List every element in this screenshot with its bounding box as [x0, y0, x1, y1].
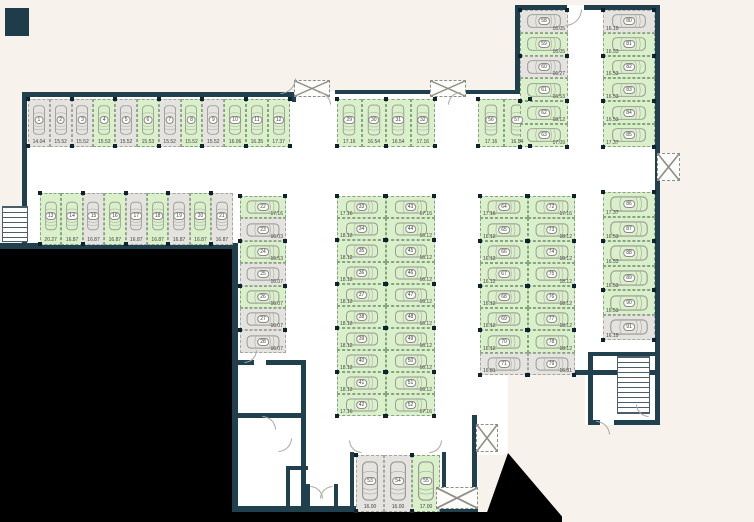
space-size-label: 16.03: [270, 234, 283, 240]
parking-space-53[interactable]: 5316.00: [356, 455, 384, 512]
column-post: [652, 145, 656, 149]
parking-space-43[interactable]: 4317.16: [386, 196, 435, 218]
space-number: 44: [405, 225, 417, 233]
space-number: 39: [356, 335, 368, 343]
parking-space-59[interactable]: 5916.05: [520, 33, 568, 56]
space-size-label: 16.19: [606, 26, 619, 32]
column-post: [478, 373, 482, 377]
space-number: 22: [257, 203, 269, 211]
parking-space-25[interactable]: 2516.07: [240, 263, 286, 285]
space-size-label: 16.12: [483, 256, 496, 262]
space-number: 75: [546, 270, 558, 278]
column-post: [244, 97, 248, 101]
space-number: 25: [257, 270, 269, 278]
parking-space-48[interactable]: 4816.12: [386, 306, 435, 328]
parking-space-85[interactable]: 8517.37: [603, 124, 655, 147]
parking-space-50[interactable]: 5016.12: [386, 350, 435, 372]
space-size-label: 15.52: [163, 139, 176, 145]
parking-space-29[interactable]: 2917.16: [337, 99, 362, 147]
column-post: [572, 373, 576, 377]
column-post: [38, 242, 42, 246]
column-post: [384, 97, 388, 101]
space-number: 26: [257, 293, 269, 301]
space-size-label: 16.12: [419, 321, 432, 327]
column-post: [238, 194, 242, 198]
space-size-label: 15.53: [98, 139, 111, 145]
space-number: 79: [546, 360, 558, 368]
parking-space-19[interactable]: 1916.87: [168, 193, 189, 245]
space-size-label: 16.12: [419, 277, 432, 283]
column-post: [209, 242, 213, 246]
column-post: [354, 453, 358, 457]
space-number: 56: [485, 116, 497, 124]
column-post: [335, 326, 339, 330]
space-number: 6: [144, 116, 153, 124]
space-size-label: 17.37: [272, 139, 285, 145]
column-post: [526, 284, 530, 288]
space-number: 5: [122, 116, 131, 124]
column-post: [166, 191, 170, 195]
parking-space-84[interactable]: 8416.53: [603, 101, 655, 124]
space-number: 24: [257, 248, 269, 256]
column-post: [335, 238, 339, 242]
column-post: [601, 338, 605, 342]
parking-space-68[interactable]: 6816.12: [480, 286, 528, 308]
space-number: 12: [273, 116, 285, 124]
space-number: 61: [538, 86, 550, 94]
column-post: [283, 194, 287, 198]
space-number: 53: [364, 477, 376, 485]
space-number: 16: [109, 212, 121, 220]
space-size-label: 18.12: [552, 117, 565, 123]
space-size-label: 18.12: [559, 301, 572, 307]
space-number: 76: [546, 293, 558, 301]
space-number: 81: [623, 40, 635, 48]
space-size-label: 16.87: [216, 237, 229, 243]
space-number: 58: [538, 17, 550, 25]
parking-space-46[interactable]: 4616.12: [386, 262, 435, 284]
space-number: 38: [356, 313, 368, 321]
space-number: 29: [343, 116, 355, 124]
space-size-label: 15.52: [76, 139, 89, 145]
column-post: [601, 99, 605, 103]
parking-space-41[interactable]: 4118.12: [337, 372, 386, 394]
parking-space-14[interactable]: 1416.87: [61, 193, 82, 245]
parking-space-78[interactable]: 7818.12: [528, 330, 575, 352]
wall: [350, 452, 354, 508]
parking-space-73[interactable]: 7318.12: [528, 218, 575, 240]
space-size-label: 18.12: [559, 323, 572, 329]
space-number: 7: [165, 116, 174, 124]
column-post: [432, 238, 436, 242]
column-post: [476, 144, 480, 148]
parking-space-23[interactable]: 2316.03: [240, 218, 286, 240]
column-post: [572, 194, 576, 198]
column-post: [518, 99, 522, 103]
wall: [588, 352, 593, 424]
parking-space-24[interactable]: 2416.53: [240, 241, 286, 263]
parking-space-89[interactable]: 8916.53: [603, 266, 655, 291]
parking-space-58[interactable]: 5816.05: [520, 10, 568, 33]
space-size-label: 17.16: [419, 211, 432, 217]
parking-space-31[interactable]: 3116.54: [386, 99, 411, 147]
column-post: [565, 54, 569, 58]
parking-space-45[interactable]: 4516.12: [386, 240, 435, 262]
column-post: [384, 144, 388, 148]
column-post: [432, 370, 436, 374]
wall: [266, 360, 306, 365]
parking-space-5[interactable]: 515.52: [115, 99, 137, 147]
space-number: 23: [257, 226, 269, 234]
column-post: [335, 370, 339, 374]
space-size-label: 16.00: [364, 504, 377, 510]
column-post: [124, 191, 128, 195]
space-size-label: 16.81: [483, 368, 496, 374]
space-number: 35: [356, 247, 368, 255]
space-size-label: 17.37: [606, 210, 619, 216]
space-size-label: 17.16: [483, 211, 496, 217]
wall: [286, 466, 308, 470]
space-size-label: 18.12: [559, 346, 572, 352]
space-size-label: 16.54: [367, 139, 380, 145]
parking-space-8[interactable]: 815.52: [181, 99, 203, 147]
parking-space-54[interactable]: 5416.00: [384, 455, 412, 512]
parking-space-76[interactable]: 7618.12: [528, 286, 575, 308]
space-size-label: 16.06: [229, 139, 242, 145]
parking-space-10[interactable]: 1016.06: [224, 99, 246, 147]
space-number: 4: [100, 116, 109, 124]
space-size-label: 16.53: [270, 256, 283, 262]
parking-floor-plan: 114.04215.52315.52415.53515.52615.53715.…: [0, 0, 754, 522]
masked-region: [0, 249, 232, 522]
parking-space-12[interactable]: 1217.37: [268, 99, 290, 147]
parking-space-86[interactable]: 8617.37: [603, 192, 655, 217]
parking-space-38[interactable]: 3818.12: [337, 306, 386, 328]
parking-space-3[interactable]: 315.52: [72, 99, 94, 147]
column-post: [335, 414, 339, 418]
column-post: [288, 97, 292, 101]
space-number: 86: [623, 200, 635, 208]
column-post: [601, 8, 605, 12]
column-post: [384, 326, 388, 330]
parking-space-62[interactable]: 6218.12: [520, 101, 568, 124]
space-number: 74: [546, 248, 558, 256]
space-size-label: 18.12: [340, 365, 353, 371]
space-size-label: 16.53: [606, 94, 619, 100]
space-size-label: 16.35: [251, 139, 264, 145]
space-number: 45: [405, 247, 417, 255]
space-number: 1: [35, 116, 44, 124]
column-post: [478, 328, 482, 332]
space-number: 48: [405, 313, 417, 321]
column-post: [652, 8, 656, 12]
column-post: [113, 97, 117, 101]
space-number: 80: [623, 17, 635, 25]
space-size-label: 18.12: [340, 233, 353, 239]
parking-space-71[interactable]: 7116.81: [480, 353, 528, 375]
space-size-label: 16.12: [419, 233, 432, 239]
space-size-label: 17.16: [340, 409, 353, 415]
column-post: [81, 242, 85, 246]
space-size-label: 16.87: [66, 237, 79, 243]
crossed-shaft-icon: [476, 424, 498, 452]
column-post: [478, 194, 482, 198]
column-post: [528, 144, 532, 148]
parking-space-83[interactable]: 8316.53: [603, 78, 655, 101]
column-post: [601, 239, 605, 243]
space-number: 72: [546, 203, 558, 211]
space-size-label: 16.53: [606, 234, 619, 240]
column-post: [26, 144, 30, 148]
space-number: 15: [88, 212, 100, 220]
column-post: [478, 284, 482, 288]
space-number: 60: [538, 63, 550, 71]
parking-space-80[interactable]: 8016.19: [603, 10, 655, 33]
column-post: [478, 239, 482, 243]
space-size-label: 16.12: [419, 299, 432, 305]
space-number: 42: [356, 401, 368, 409]
column-post: [572, 239, 576, 243]
column-post: [652, 239, 656, 243]
parking-space-79[interactable]: 7916.81: [528, 353, 575, 375]
space-size-label: 16.12: [483, 279, 496, 285]
space-number: 28: [257, 338, 269, 346]
space-size-label: 16.87: [173, 237, 186, 243]
column-post: [238, 284, 242, 288]
space-size-label: 18.12: [340, 387, 353, 393]
space-number: 62: [538, 109, 550, 117]
wall: [286, 466, 290, 512]
column-post: [384, 194, 388, 198]
parking-space-26[interactable]: 2616.07: [240, 286, 286, 308]
space-size-label: 15.53: [142, 139, 155, 145]
space-size-label: 15.52: [120, 139, 133, 145]
space-number: 21: [216, 212, 228, 220]
column-post: [476, 97, 480, 101]
parking-space-17[interactable]: 1716.87: [126, 193, 147, 245]
column-post: [572, 328, 576, 332]
space-number: 85: [623, 131, 635, 139]
space-number: 78: [546, 338, 558, 346]
column-post: [601, 190, 605, 194]
space-number: 11: [251, 116, 262, 124]
space-number: 77: [546, 315, 558, 323]
column-post: [410, 453, 414, 457]
parking-space-11[interactable]: 1116.35: [246, 99, 268, 147]
wall: [334, 484, 338, 512]
wall: [238, 413, 304, 418]
column-post: [526, 328, 530, 332]
parking-space-67[interactable]: 6716.12: [480, 263, 528, 285]
space-size-label: 18.12: [559, 256, 572, 262]
space-size-label: 17.16: [419, 409, 432, 415]
space-size-label: 16.87: [194, 237, 207, 243]
space-number: 2: [56, 116, 65, 124]
parking-space-39[interactable]: 3918.12: [337, 328, 386, 350]
space-size-label: 16.53: [606, 49, 619, 55]
parking-space-1[interactable]: 114.04: [28, 99, 50, 147]
space-size-label: 15.52: [54, 139, 67, 145]
parking-space-15[interactable]: 1516.87: [83, 193, 104, 245]
parking-space-20[interactable]: 2016.87: [190, 193, 211, 245]
parking-space-4[interactable]: 415.53: [93, 99, 115, 147]
parking-space-77[interactable]: 7718.12: [528, 308, 575, 330]
masked-region: [487, 453, 562, 522]
parking-space-88[interactable]: 8816.53: [603, 241, 655, 266]
parking-space-36[interactable]: 3618.12: [337, 262, 386, 284]
space-number: 63: [538, 131, 550, 139]
space-number: 52: [405, 401, 417, 409]
parking-space-90[interactable]: 9016.53: [603, 290, 655, 315]
parking-space-91[interactable]: 9116.19: [603, 315, 655, 340]
space-size-label: 14.04: [33, 139, 46, 145]
column-post: [157, 97, 161, 101]
parking-space-6[interactable]: 615.53: [137, 99, 159, 147]
parking-space-52[interactable]: 5217.16: [386, 394, 435, 416]
parking-space-66[interactable]: 6616.12: [480, 241, 528, 263]
space-number: 88: [623, 249, 635, 257]
column-post: [113, 144, 117, 148]
parking-space-37[interactable]: 3718.12: [337, 284, 386, 306]
parking-space-72[interactable]: 7217.16: [528, 196, 575, 218]
parking-space-18[interactable]: 1816.87: [147, 193, 168, 245]
column-post: [572, 284, 576, 288]
space-size-label: 16.07: [270, 346, 283, 352]
parking-space-47[interactable]: 4716.12: [386, 284, 435, 306]
parking-space-65[interactable]: 6516.12: [480, 218, 528, 240]
column-post: [81, 191, 85, 195]
column-post: [565, 145, 569, 149]
space-size-label: 16.53: [606, 259, 619, 265]
space-number: 37: [356, 291, 368, 299]
wall: [614, 420, 660, 425]
parking-space-75[interactable]: 7518.12: [528, 263, 575, 285]
space-size-label: 16.05: [552, 26, 565, 32]
space-number: 70: [498, 338, 510, 346]
column-post: [283, 239, 287, 243]
space-size-label: 16.12: [483, 346, 496, 352]
space-number: 64: [498, 203, 510, 211]
parking-space-27[interactable]: 2716.07: [240, 308, 286, 330]
space-number: 13: [45, 212, 57, 220]
parking-space-30[interactable]: 3016.54: [362, 99, 387, 147]
column-post: [526, 239, 530, 243]
column-post: [70, 144, 74, 148]
space-number: 19: [173, 212, 185, 220]
space-number: 9: [209, 116, 218, 124]
column-post: [526, 194, 530, 198]
space-size-label: 17.37: [606, 140, 619, 146]
parking-space-33[interactable]: 3317.16: [337, 196, 386, 218]
column-post: [335, 194, 339, 198]
space-size-label: 16.05: [552, 49, 565, 55]
column-post: [200, 144, 204, 148]
column-post: [518, 145, 522, 149]
space-number: 87: [623, 225, 635, 233]
column-post: [238, 328, 242, 332]
space-number: 14: [66, 212, 78, 220]
parking-space-69[interactable]: 6916.12: [480, 308, 528, 330]
crossed-shaft-icon: [436, 487, 478, 509]
parking-space-32[interactable]: 3217.16: [411, 99, 436, 147]
parking-space-9[interactable]: 915.52: [202, 99, 224, 147]
space-size-label: 15.52: [185, 139, 198, 145]
parking-space-81[interactable]: 8116.53: [603, 33, 655, 56]
parking-space-64[interactable]: 6417.16: [480, 196, 528, 218]
space-number: 10: [229, 116, 241, 124]
column-post: [166, 242, 170, 246]
parking-space-34[interactable]: 3418.12: [337, 218, 386, 240]
parking-space-13[interactable]: 1320.27: [40, 193, 61, 245]
column-post: [335, 97, 339, 101]
parking-space-56[interactable]: 5617.16: [478, 99, 504, 147]
column-post: [209, 191, 213, 195]
parking-space-87[interactable]: 8716.53: [603, 217, 655, 242]
column-post: [565, 99, 569, 103]
space-size-label: 16.87: [87, 237, 100, 243]
space-size-label: 16.53: [552, 94, 565, 100]
column-post: [384, 414, 388, 418]
parking-space-74[interactable]: 7418.12: [528, 241, 575, 263]
space-size-label: 16.87: [109, 237, 122, 243]
parking-space-22[interactable]: 2217.16: [240, 196, 286, 218]
column-post: [432, 194, 436, 198]
column-post: [601, 145, 605, 149]
space-size-label: 16.12: [483, 234, 496, 240]
column-post: [432, 414, 436, 418]
parking-space-35[interactable]: 3518.12: [337, 240, 386, 262]
space-number: 83: [623, 86, 635, 94]
parking-space-70[interactable]: 7016.12: [480, 330, 528, 352]
parking-space-21[interactable]: 2116.87: [211, 193, 232, 245]
space-size-label: 16.53: [606, 308, 619, 314]
space-number: 71: [498, 360, 510, 368]
parking-space-60[interactable]: 6016.27: [520, 56, 568, 79]
space-number: 84: [623, 109, 635, 117]
column-post: [283, 284, 287, 288]
column-post: [384, 370, 388, 374]
column-post: [432, 282, 436, 286]
parking-space-16[interactable]: 1616.87: [104, 193, 125, 245]
parking-space-40[interactable]: 4018.12: [337, 350, 386, 372]
parking-space-82[interactable]: 8216.53: [603, 56, 655, 79]
space-number: 66: [498, 248, 510, 256]
column-post: [410, 509, 414, 513]
space-size-label: 17.00: [420, 504, 433, 510]
column-post: [384, 282, 388, 286]
space-size-label: 16.53: [606, 71, 619, 77]
parking-space-44[interactable]: 4416.12: [386, 218, 435, 240]
space-size-label: 18.12: [559, 234, 572, 240]
space-size-label: 16.53: [606, 117, 619, 123]
wall: [655, 5, 660, 373]
space-number: 32: [417, 116, 429, 124]
parking-space-2[interactable]: 215.52: [50, 99, 72, 147]
space-size-label: 16.07: [270, 279, 283, 285]
space-number: 82: [623, 63, 635, 71]
parking-space-7[interactable]: 715.52: [159, 99, 181, 147]
space-number: 89: [623, 274, 635, 282]
space-size-label: 16.12: [483, 323, 496, 329]
parking-space-49[interactable]: 4916.12: [386, 328, 435, 350]
parking-space-42[interactable]: 4217.16: [337, 394, 386, 416]
space-size-label: 17.09: [552, 140, 565, 146]
space-size-label: 16.54: [392, 139, 405, 145]
parking-space-51[interactable]: 5116.12: [386, 372, 435, 394]
column-post: [601, 288, 605, 292]
space-number: 17: [131, 212, 143, 220]
space-size-label: 16.87: [151, 237, 164, 243]
